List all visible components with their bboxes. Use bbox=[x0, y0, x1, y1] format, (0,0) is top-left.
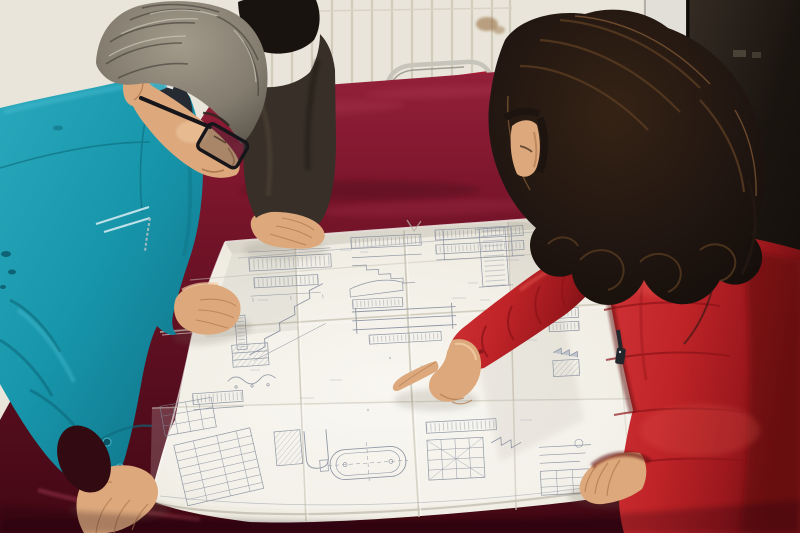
door-hinge-icon bbox=[733, 50, 746, 57]
door-hinge-icon bbox=[752, 52, 761, 58]
photo bbox=[0, 0, 800, 533]
photo-canvas bbox=[0, 0, 800, 533]
